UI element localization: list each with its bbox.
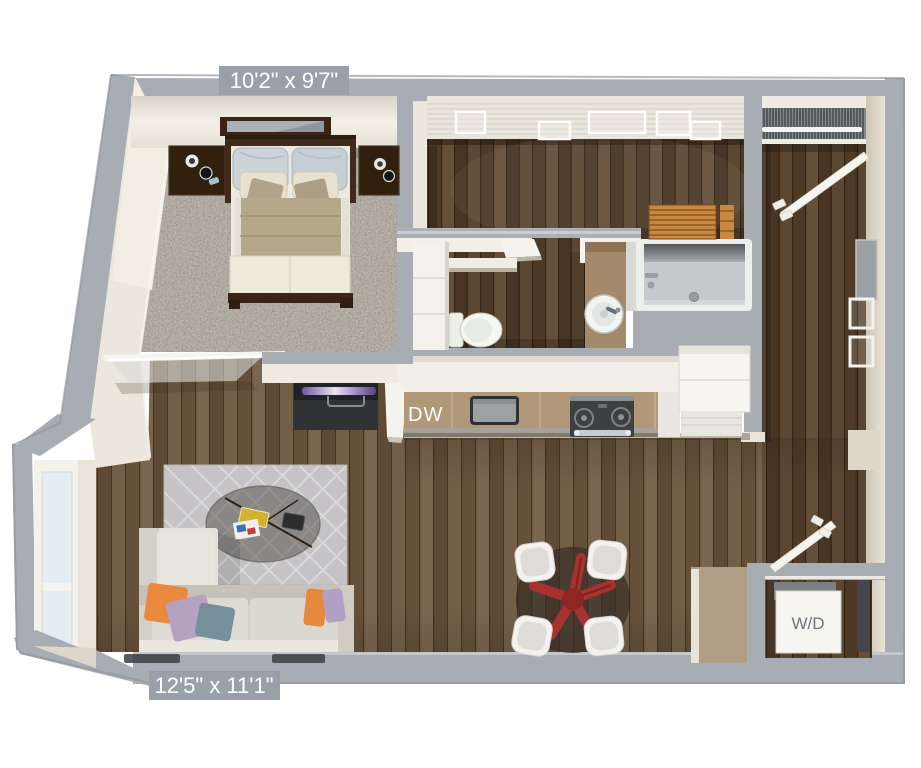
svg-text:12'5" x 11'1": 12'5" x 11'1" xyxy=(154,673,273,698)
svg-text:W/D: W/D xyxy=(791,614,824,633)
svg-text:10'2" x 9'7": 10'2" x 9'7" xyxy=(230,68,338,93)
svg-text:DW: DW xyxy=(408,404,443,426)
